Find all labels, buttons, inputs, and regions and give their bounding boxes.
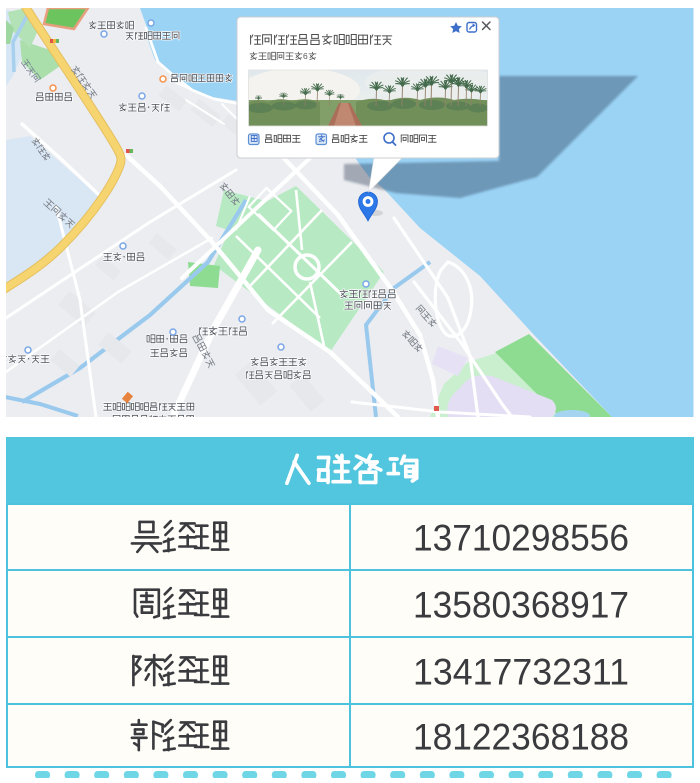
svg-text:6: 6: [303, 51, 308, 61]
svg-text:13710298556: 13710298556: [413, 517, 629, 559]
svg-text:13580368917: 13580368917: [413, 584, 629, 626]
svg-text:18122368188: 18122368188: [413, 716, 629, 758]
svg-text:13417732311: 13417732311: [413, 651, 629, 693]
